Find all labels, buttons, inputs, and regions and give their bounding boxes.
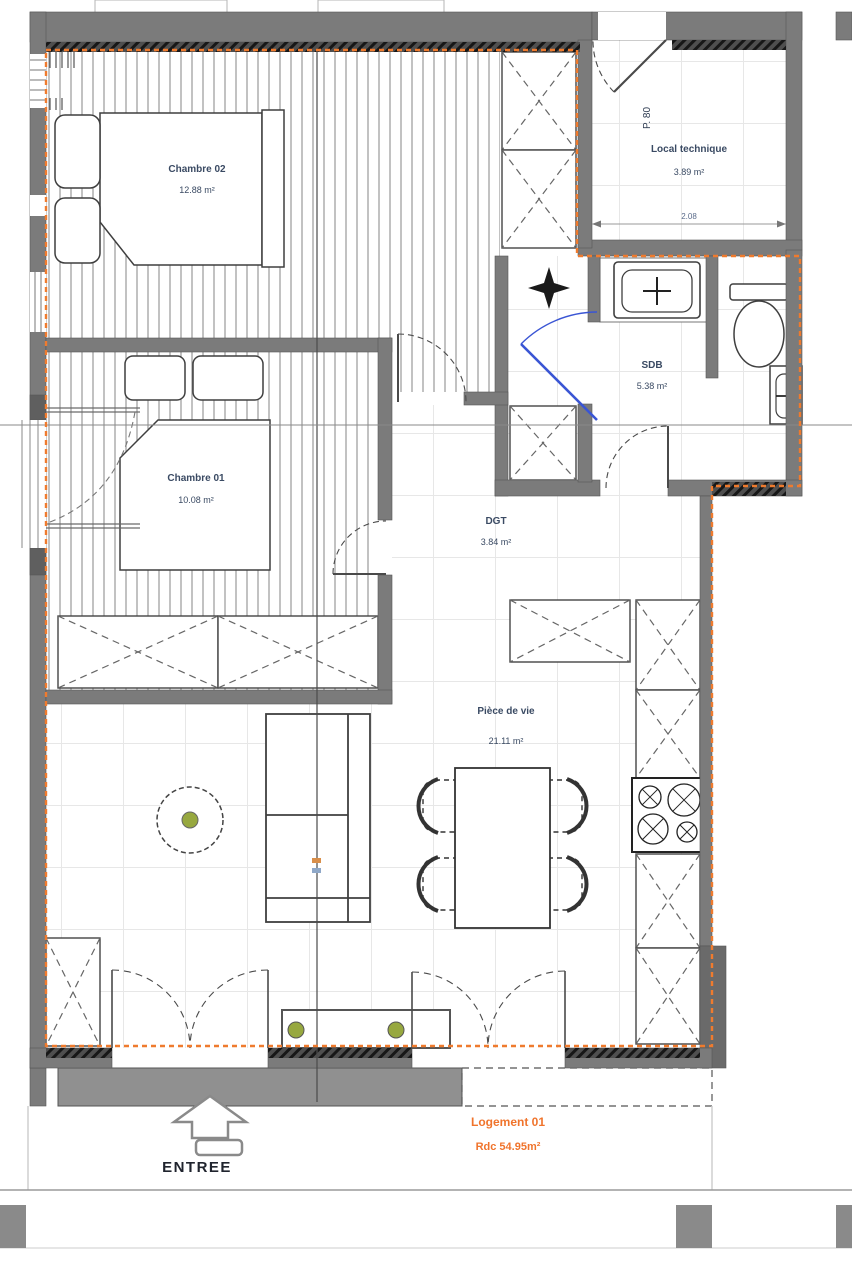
wardrobe-bedroom1 — [58, 616, 378, 688]
wall-bathroom-bottom-left — [495, 480, 600, 496]
balcony-slab — [58, 1068, 462, 1106]
room-label-sdb: SDB — [641, 360, 662, 371]
plant-icon — [182, 812, 198, 828]
washbasin — [600, 258, 712, 322]
room-label-local-technique: Local technique — [651, 144, 728, 155]
bed-bedroom2 — [55, 110, 284, 267]
doorway-local-technique — [598, 12, 666, 40]
toilet — [730, 284, 788, 367]
wall-right-local-technique — [786, 12, 802, 250]
room-area-chambre01: 10.08 m² — [178, 495, 214, 505]
floorplan-drawing: Chambre 02 12.88 m² Local technique 3.89… — [0, 0, 852, 1280]
wall-bedroom1-right-lower — [378, 575, 392, 704]
wall-bedroom1-right-upper — [378, 338, 392, 520]
plant-icon — [388, 1022, 404, 1038]
unit-name-label: Logement 01 — [471, 1115, 545, 1129]
room-area-piece-de-vie: 21.11 m² — [489, 736, 524, 746]
unit-area-label: Rdc 54.95m² — [476, 1141, 541, 1153]
wall-sdb-wc-divider — [706, 256, 718, 378]
wall-living-right — [700, 496, 712, 946]
window-left-2 — [30, 195, 46, 216]
wardrobe-top-column — [502, 52, 576, 248]
wall-local-technique-bottom — [578, 240, 802, 256]
room-label-piece-de-vie: Pièce de vie — [477, 706, 535, 717]
wall-top — [30, 12, 592, 42]
planter-bench — [282, 1010, 450, 1048]
door-size-label: P. 80 — [642, 107, 653, 129]
dining-table — [455, 768, 550, 928]
room-area-chambre02: 12.88 m² — [179, 185, 215, 195]
room-area-sdb: 5.38 m² — [637, 381, 668, 391]
wall-bedroom1-top — [46, 338, 392, 352]
room-area-dgt: 3.84 m² — [481, 537, 512, 547]
room-label-dgt: DGT — [485, 516, 506, 527]
room-area-local-technique: 3.89 m² — [674, 167, 705, 177]
wall-dgt-top — [464, 392, 508, 405]
coffee-table — [157, 787, 223, 853]
wall-closet-dgt — [578, 404, 592, 482]
wall-shower-left — [495, 256, 508, 496]
bed-bedroom1 — [120, 356, 270, 570]
wall-living-top — [46, 690, 392, 704]
room-label-chambre02: Chambre 02 — [168, 164, 226, 175]
dimension-value: 2.08 — [681, 212, 697, 221]
floorplan-page: Chambre 02 12.88 m² Local technique 3.89… — [0, 0, 852, 1280]
plant-icon — [288, 1022, 304, 1038]
closet-living-corner — [46, 938, 100, 1046]
closet-dgt — [510, 406, 576, 480]
terrace-dashed-outline — [462, 1068, 712, 1106]
entrance-label: ENTREE — [162, 1159, 232, 1176]
cooktop — [632, 778, 704, 852]
sofa — [266, 714, 370, 922]
room-label-chambre01: Chambre 01 — [167, 473, 225, 484]
window-left-3 — [30, 272, 46, 332]
wall-wardrobe-divider — [578, 40, 592, 248]
floor-local-technique — [592, 40, 786, 240]
window-left-1 — [30, 54, 46, 108]
